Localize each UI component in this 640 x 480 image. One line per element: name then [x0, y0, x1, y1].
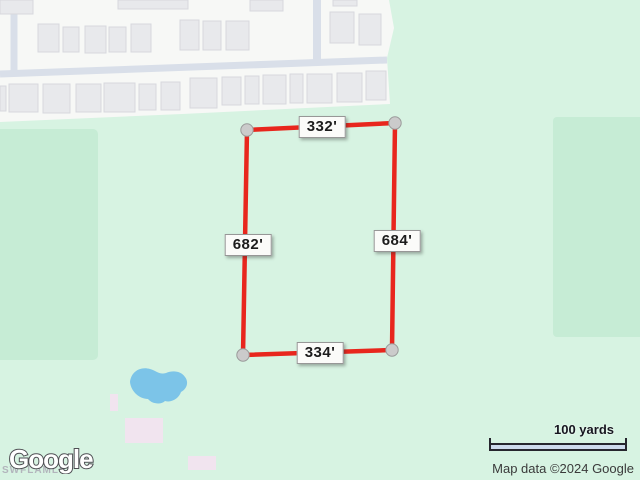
measurement-label-top: 332': [299, 116, 346, 138]
parcel-vertex: [237, 349, 249, 361]
scale-bar: 100 yards: [478, 423, 628, 458]
scale-bar-label: 100 yards: [478, 423, 614, 437]
measurement-label-left: 682': [225, 234, 272, 256]
parcel-vertex: [241, 124, 253, 136]
measurement-label-right: 684': [374, 230, 421, 252]
map-attribution: Map data ©2024 Google: [492, 461, 634, 476]
parcel-vertex: [389, 117, 401, 129]
scale-bar-ruler: [488, 437, 628, 453]
google-logo-graphic: Google: [5, 444, 105, 474]
google-logo-text: Google: [9, 444, 93, 474]
google-logo[interactable]: Google: [5, 444, 105, 479]
parcel-vertex: [386, 344, 398, 356]
map-canvas[interactable]: 332' 682' 684' 334' SWFLAMLS Google 100 …: [0, 0, 640, 480]
parcel-overlay: [0, 0, 640, 480]
measurement-label-bottom: 334': [297, 342, 344, 364]
